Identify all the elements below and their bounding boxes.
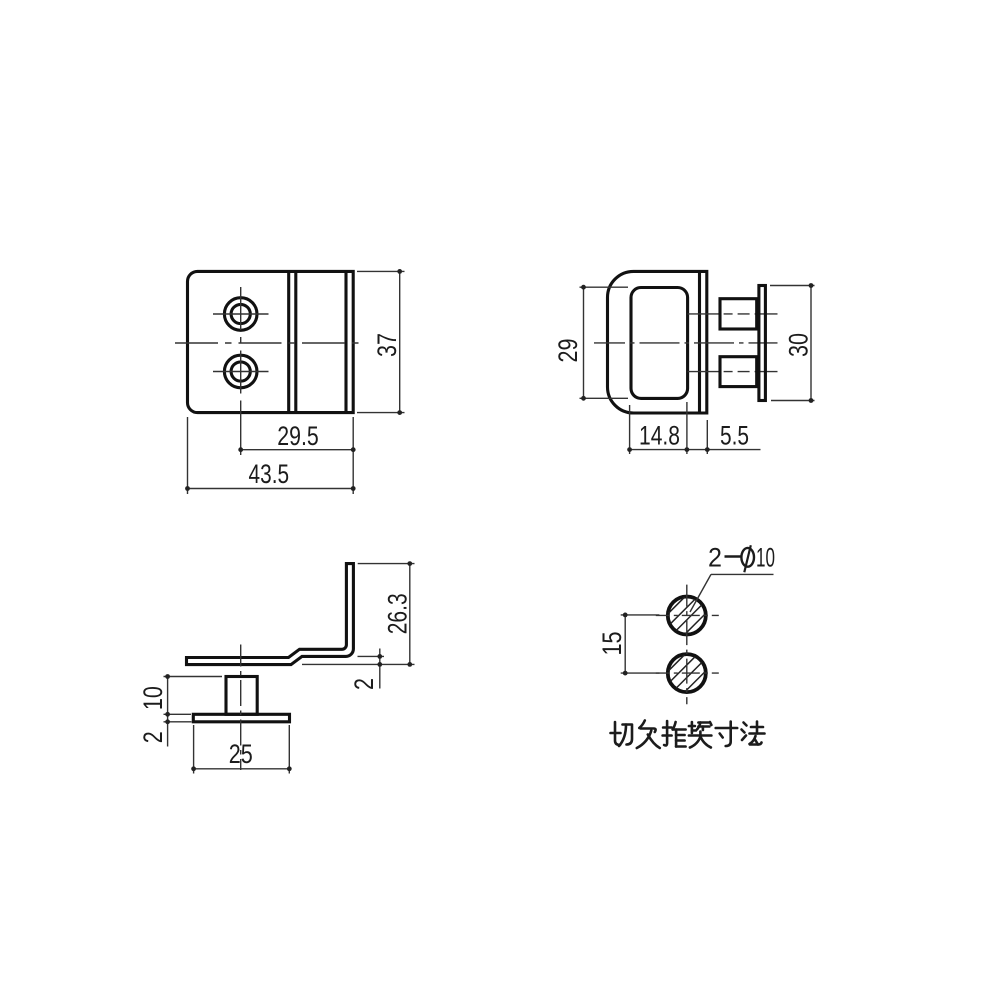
- svg-text:2: 2: [138, 731, 168, 743]
- svg-text:2: 2: [708, 543, 722, 573]
- svg-text:43.5: 43.5: [249, 459, 290, 489]
- svg-text:5.5: 5.5: [720, 421, 749, 451]
- svg-text:29: 29: [553, 339, 583, 363]
- svg-text:37: 37: [372, 333, 402, 357]
- svg-text:14.8: 14.8: [639, 421, 680, 451]
- svg-text:30: 30: [784, 333, 814, 357]
- svg-text:10: 10: [756, 543, 775, 573]
- svg-text:10: 10: [138, 686, 168, 710]
- svg-text:2: 2: [349, 678, 379, 690]
- svg-text:15: 15: [597, 632, 627, 656]
- svg-text:25: 25: [229, 739, 253, 769]
- svg-text:29.5: 29.5: [277, 421, 319, 451]
- svg-text:26.3: 26.3: [383, 593, 413, 634]
